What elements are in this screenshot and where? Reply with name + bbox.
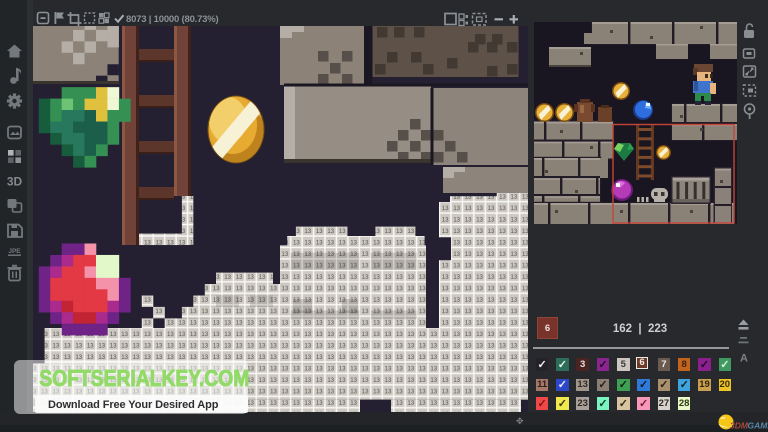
svg-text:GAME: GAME [748,421,768,431]
svg-text:A: A [740,353,748,365]
svg-text:3DM: 3DM [730,421,749,431]
